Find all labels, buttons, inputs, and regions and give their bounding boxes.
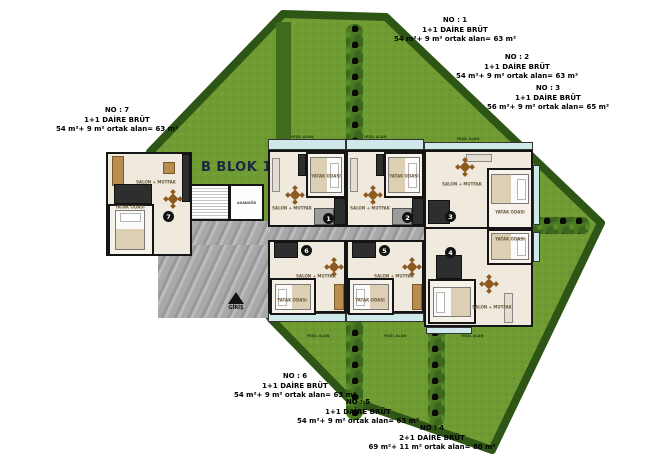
kitchen-counter (182, 154, 190, 202)
room-label: SALON + MUTFAK (350, 206, 390, 211)
annotation-type: 1+1 DAİRE BRÜT (56, 116, 178, 126)
kitchen-counter (298, 154, 306, 176)
annotation-no-1: NO : 1 1+1 DAİRE BRÜT 54 m²+ 9 m² ortak … (394, 16, 516, 45)
sofa (350, 158, 358, 192)
unit-1: SALON + MUTFAK YATAK ODASI 1 (268, 150, 346, 227)
kitchen-counter (376, 154, 384, 176)
annotation-no: NO : 3 (487, 84, 609, 94)
bed (115, 210, 145, 250)
annotation-no: NO : 7 (56, 106, 178, 116)
annotation-no: NO : 6 (234, 372, 356, 382)
annotation-type: 2+1 DAİRE BRÜT (369, 434, 496, 444)
sofa (272, 158, 280, 192)
balcony-unit-1 (268, 139, 346, 150)
room-label: YATAK ODASI (355, 298, 385, 303)
unit-number-badge: 6 (301, 245, 312, 256)
bathroom (334, 198, 346, 225)
unit-number-badge: 3 (445, 211, 456, 222)
window-unit-3 (533, 165, 540, 225)
wardrobe (112, 156, 124, 186)
annotation-type: 1+1 DAİRE BRÜT (297, 408, 419, 418)
annotation-no: NO : 5 (297, 398, 419, 408)
room-label: SALON + MUTFAK (136, 180, 176, 185)
annotation-type: 1+1 DAİRE BRÜT (394, 26, 516, 36)
unit-number-badge: 7 (163, 211, 174, 222)
unit-7: SALON + MUTFAK YATAK ODASI 7 (106, 152, 192, 256)
room-label: SALON + MUTFAK (472, 305, 512, 310)
annotation-no: NO : 4 (369, 424, 496, 434)
annotation-type: 1+1 DAİRE BRÜT (487, 94, 609, 104)
annotation-no-2: NO : 2 1+1 DAİRE BRÜT 54 m²+ 9 m² ortak … (456, 53, 578, 82)
annotation-area: 54 m²+ 9 m² ortak alan= 63 m² (394, 35, 516, 45)
unit-4: SALON + MUTFAK YATAK ODASI 4 (424, 227, 533, 327)
dining-table (405, 260, 419, 274)
green-area-label: YEŞİL ALAN (461, 334, 484, 338)
annotation-type: 1+1 DAİRE BRÜT (456, 63, 578, 73)
dining-table (166, 192, 180, 206)
entrance-marker: GİRİŞ (219, 292, 253, 311)
room-label: YATAK ODASI (495, 237, 525, 242)
wardrobe (334, 284, 344, 310)
dining-table (366, 188, 380, 202)
unit-number-badge: 5 (379, 245, 390, 256)
room-label: YATAK ODASI (389, 174, 419, 179)
balcony-unit-4 (426, 327, 472, 334)
unit-5: SALON + MUTFAK YATAK ODASI 5 (346, 240, 424, 313)
window-unit-4 (533, 232, 540, 262)
bathroom (436, 255, 462, 279)
room-label: SALON + MUTFAK (272, 206, 312, 211)
entrance-label: GİRİŞ (219, 305, 253, 311)
side-table (163, 162, 175, 174)
dining-table (482, 277, 496, 291)
annotation-area: 56 m²+ 9 m² ortak alan= 65 m² (487, 103, 609, 113)
unit-6: SALON + MUTFAK YATAK ODASI 6 (268, 240, 346, 313)
entrance-arrow-icon (228, 292, 244, 304)
unit-3: SALON + MUTFAK YATAK ODASI 3 (424, 150, 533, 238)
annotation-area: 54 m²+ 9 m² ortak alan= 63 m² (56, 125, 178, 135)
annotation-no-6: NO : 6 1+1 DAİRE BRÜT 54 m²+ 9 m² ortak … (234, 372, 356, 401)
dining-table (288, 188, 302, 202)
elevator-label: ASANSÖR (237, 201, 256, 205)
green-area-label: YEŞİL ALAN (307, 334, 330, 338)
room-label: YATAK ODASI (495, 210, 525, 215)
elevator: ASANSÖR (229, 184, 264, 221)
annotation-no-7: NO : 7 1+1 DAİRE BRÜT 54 m²+ 9 m² ortak … (56, 106, 178, 135)
room-label: YATAK ODASI (311, 174, 341, 179)
bathroom (352, 242, 376, 258)
annotation-no: NO : 2 (456, 53, 578, 63)
annotation-type: 1+1 DAİRE BRÜT (234, 382, 356, 392)
unit-2: SALON + MUTFAK YATAK ODASI 2 (346, 150, 424, 227)
balcony-unit-3 (424, 142, 533, 150)
room-label: SALON + MUTFAK (374, 274, 414, 279)
unit-number-badge: 2 (402, 212, 413, 223)
unit-number-badge: 1 (323, 213, 334, 224)
green-area-label: YEŞİL ALAN (457, 137, 480, 141)
dining-table (458, 160, 472, 174)
annotation-no: NO : 1 (394, 16, 516, 26)
room-label: SALON + MUTFAK (296, 274, 336, 279)
balcony-unit-2 (346, 139, 424, 150)
annotation-no-5: NO : 5 1+1 DAİRE BRÜT 54 m²+ 9 m² ortak … (297, 398, 419, 427)
annotation-area: 69 m²+ 11 m² ortak alan= 80 m² (369, 443, 496, 453)
dining-table (327, 260, 341, 274)
green-area-label: YEŞİL ALAN (384, 334, 407, 338)
bathroom (412, 198, 424, 225)
bed (433, 287, 471, 317)
hedge-strip-top (276, 22, 291, 148)
staircase (190, 184, 230, 221)
room-label: YATAK ODASI (277, 298, 307, 303)
bed (491, 174, 529, 204)
bathroom (114, 184, 152, 204)
wardrobe (412, 284, 422, 310)
annotation-no-4: NO : 4 2+1 DAİRE BRÜT 69 m²+ 11 m² ortak… (369, 424, 496, 453)
room-label: YATAK ODASI (115, 205, 145, 210)
bathroom (274, 242, 298, 258)
room-label: SALON + MUTFAK (442, 182, 482, 187)
annotation-area: 54 m²+ 9 m² ortak alan= 63 m² (456, 72, 578, 82)
annotation-no-3: NO : 3 1+1 DAİRE BRÜT 56 m²+ 9 m² ortak … (487, 84, 609, 113)
site-plan: YEŞİL ALAN YEŞİL ALAN YEŞİL ALAN YEŞİL A… (0, 0, 663, 460)
hallway (268, 227, 424, 240)
unit-number-badge: 4 (445, 247, 456, 258)
shrub-row-top (346, 24, 363, 148)
